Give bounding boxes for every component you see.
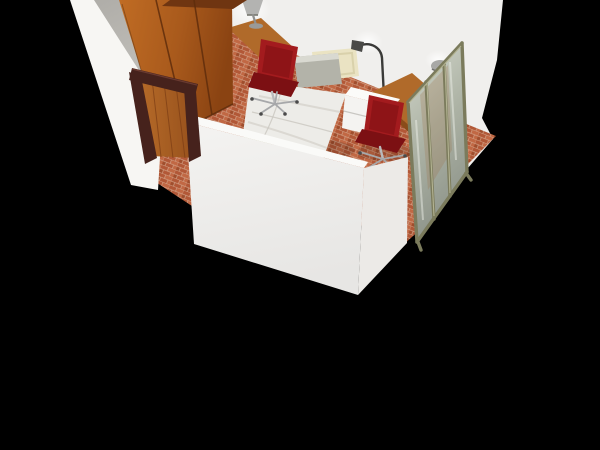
room-render-viewport bbox=[0, 0, 600, 450]
lamp-base bbox=[249, 23, 263, 29]
chair-right-back-panel bbox=[369, 100, 399, 135]
